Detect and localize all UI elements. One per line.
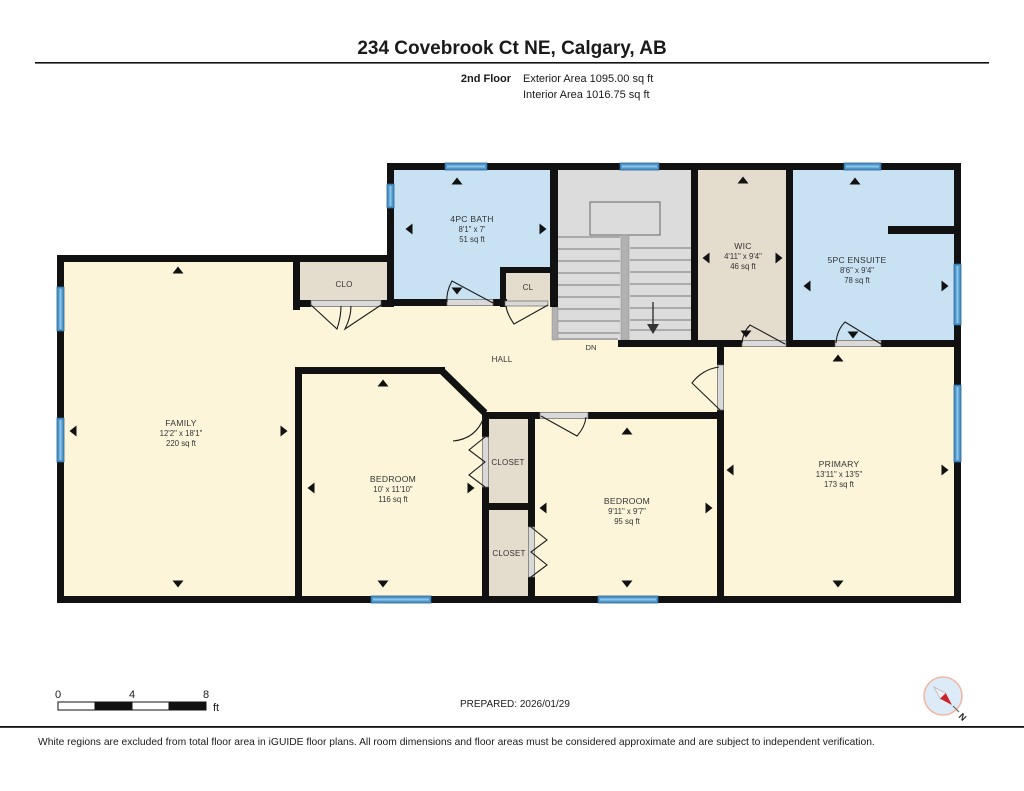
room-ensuite-name: 5PC ENSUITE <box>827 255 886 265</box>
room-bedroom1-area: 116 sq ft <box>378 495 408 504</box>
footer: 0 4 8 ft PREPARED: 2026/01/29 N <box>55 677 968 723</box>
cl-label: CL <box>523 283 534 292</box>
room-primary-area: 173 sq ft <box>824 480 855 489</box>
room-bath-name: 4PC BATH <box>450 214 493 224</box>
disclaimer-bar: White regions are excluded from total fl… <box>0 726 1024 748</box>
scale-tick-8: 8 <box>203 689 209 701</box>
room-family-area: 220 sq ft <box>166 439 197 448</box>
closet-upper-label: CLOSET <box>491 458 524 467</box>
room-primary-name: PRIMARY <box>819 459 860 469</box>
room-ensuite-dims: 8'6" x 9'4" <box>840 266 874 275</box>
scale-tick-0: 0 <box>55 689 61 701</box>
scale-bar: 0 4 8 ft <box>55 689 219 714</box>
page-title: 234 Covebrook Ct NE, Calgary, AB <box>357 38 666 59</box>
room-bedroom2-name: BEDROOM <box>604 496 650 506</box>
room-wic-area: 46 sq ft <box>730 262 756 271</box>
stairs-down-label: DN <box>586 343 597 352</box>
header-divider <box>35 62 989 64</box>
room-bath-area: 51 sq ft <box>459 235 485 244</box>
window <box>57 287 64 331</box>
prepared-date-label: PREPARED: 2026/01/29 <box>460 699 570 710</box>
window <box>954 264 961 325</box>
room-ensuite-area: 78 sq ft <box>844 276 870 285</box>
room-primary-dims: 13'11" x 13'5" <box>816 470 863 479</box>
floor-plan-canvas: 234 Covebrook Ct NE, Calgary, AB 2nd Flo… <box>0 0 1024 791</box>
window <box>57 418 64 462</box>
room-family-name: FAMILY <box>165 418 196 428</box>
window <box>445 163 487 170</box>
window <box>620 163 659 170</box>
compass-north-label: N <box>957 711 969 723</box>
scale-tick-4: 4 <box>129 689 135 701</box>
compass: N <box>924 677 968 723</box>
window <box>598 596 658 603</box>
exterior-area-label: Exterior Area 1095.00 sq ft <box>523 73 653 85</box>
scale-unit-label: ft <box>213 702 219 714</box>
room-family-dims: 12'2" x 18'1" <box>160 429 203 438</box>
closet-lower-label: CLOSET <box>492 549 525 558</box>
interior-area-label: Interior Area 1016.75 sq ft <box>523 89 650 101</box>
room-bath-dims: 8'1" x 7' <box>459 225 486 234</box>
room-bedroom1-dims: 10' x 11'10" <box>373 485 413 494</box>
hall-label: HALL <box>492 355 513 364</box>
clo-label: CLO <box>335 280 352 289</box>
window <box>844 163 881 170</box>
disclaimer-text: White regions are excluded from total fl… <box>38 737 875 748</box>
window <box>371 596 431 603</box>
room-wic-name: WIC <box>734 241 751 251</box>
room-wic-dims: 4'11" x 9'4" <box>724 252 762 261</box>
room-bedroom2-area: 95 sq ft <box>614 517 640 526</box>
stair-center-rail <box>621 235 629 340</box>
window <box>954 385 961 462</box>
window <box>387 184 394 208</box>
disclaimer-divider <box>0 726 1024 728</box>
floor-plan-page: 234 Covebrook Ct NE, Calgary, AB 2nd Flo… <box>0 0 1024 791</box>
room-bedroom1-name: BEDROOM <box>370 474 416 484</box>
floor-label: 2nd Floor <box>461 73 512 85</box>
stair-entry-rail <box>552 307 558 340</box>
header: 234 Covebrook Ct NE, Calgary, AB 2nd Flo… <box>35 38 989 101</box>
room-bedroom2-dims: 9'11" x 9'7" <box>608 507 646 516</box>
